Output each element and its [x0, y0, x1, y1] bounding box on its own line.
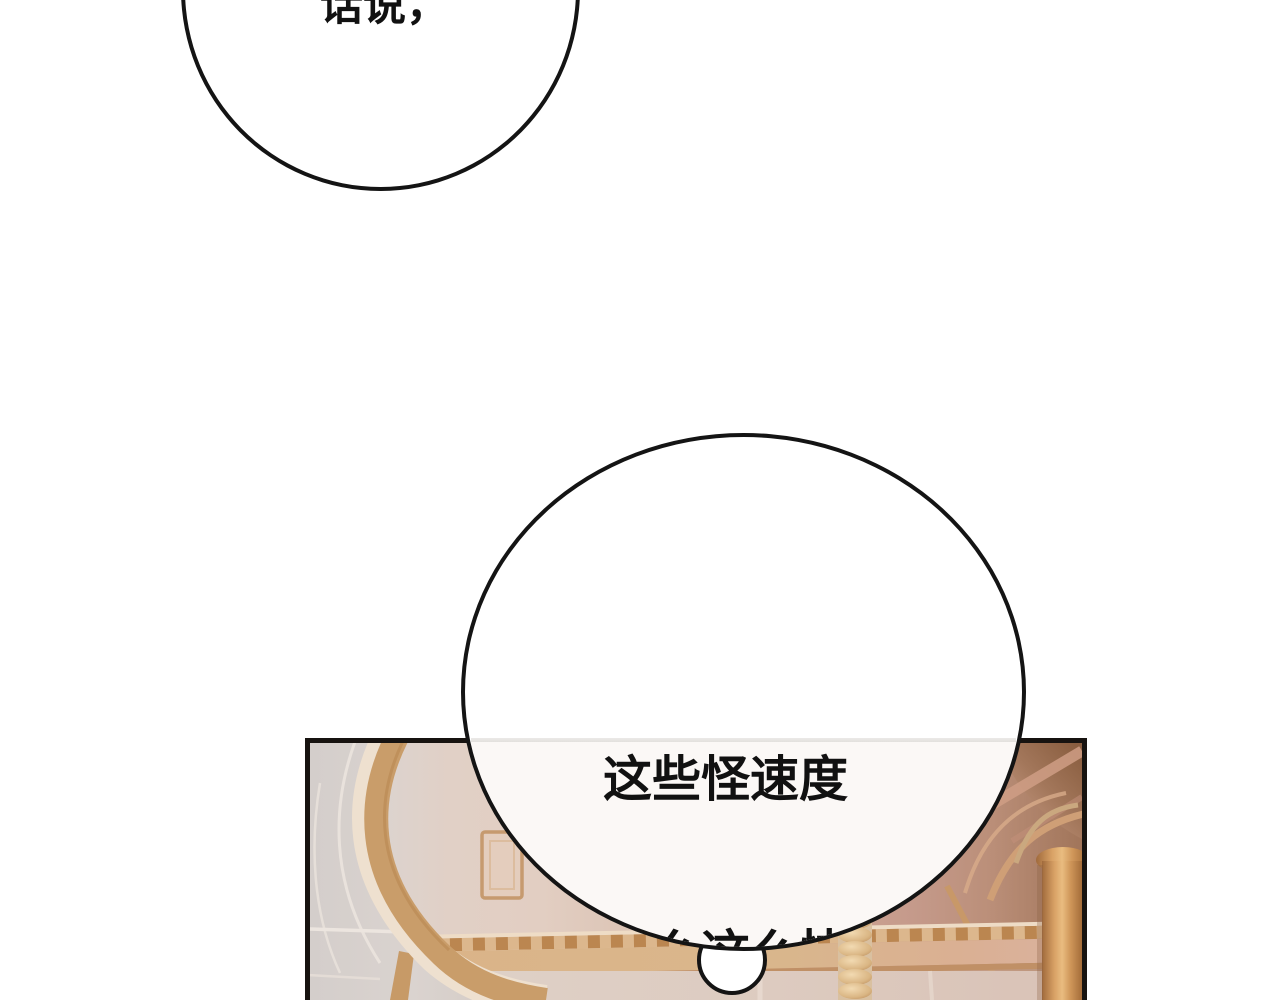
scene-sill-line: [930, 971, 932, 1000]
speech-text-top: 话说，: [320, 0, 449, 30]
speech-bubble-top: 话说，: [181, 0, 580, 191]
webtoon-page: 这些怪速度 怎么这么快！ 话说，: [0, 0, 1280, 1000]
speech-bubble-main: 这些怪速度 怎么这么快！: [461, 433, 1026, 951]
speech-text-main: 这些怪速度 怎么这么快！: [603, 635, 897, 951]
scene-right-column: [1036, 847, 1082, 1000]
speech-text-line: 这些怪速度: [603, 751, 897, 809]
